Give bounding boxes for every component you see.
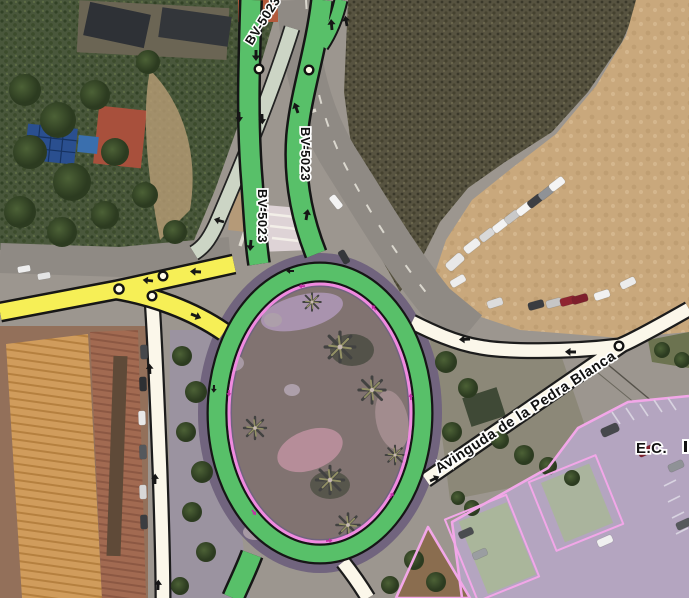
roundabout xyxy=(198,253,442,573)
road-label-bv5023-right: BV-5023 xyxy=(298,127,313,181)
map-canvas[interactable]: BV-5023 BV-5023 BV-5023 Avinguda de la P… xyxy=(0,0,689,598)
poi-label-ec: E.C. xyxy=(636,440,667,457)
selection-tint xyxy=(198,253,442,573)
satellite-map[interactable]: BV-5023 BV-5023 BV-5023 Avinguda de la P… xyxy=(0,0,689,598)
poi-label-clipped-glyph xyxy=(683,440,688,453)
road-label-bv5023-left: BV-5023 xyxy=(255,189,270,243)
